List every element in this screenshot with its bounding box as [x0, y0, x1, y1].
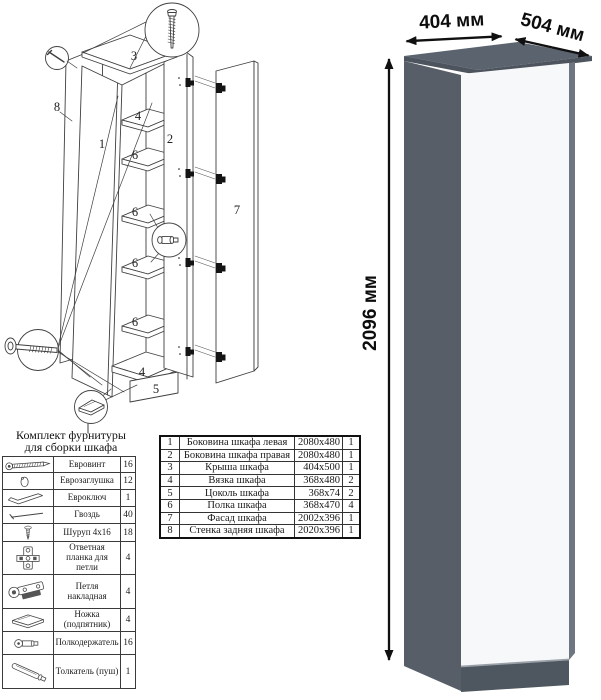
part-number: 1: [160, 436, 180, 449]
hardware-kit-title: Комплект фурнитуры для сборки шкафа: [0, 430, 142, 453]
right-side-panel-shape: [164, 52, 193, 377]
table-row: Толкатель (пуш) 1: [3, 655, 136, 689]
hardware-kit-table: Евровинт 16 Еврозаглушка 12 Евроключ 1: [2, 456, 136, 689]
part-qty: 2: [343, 474, 361, 487]
table-row: Ответная планка для петли 4: [3, 542, 136, 575]
cabinet-render: [404, 42, 592, 692]
part-label-plinth: 5: [153, 382, 159, 396]
table-row: Петля накладная 4: [3, 575, 136, 609]
cabinet-left-side: [404, 61, 461, 691]
height-dimension-label: 2096 мм: [360, 275, 381, 351]
cabinet-right-edge: [569, 62, 575, 660]
table-row: 4 Вязка шкафа 368x480 2: [160, 474, 360, 487]
part-size: 2002x396: [295, 512, 343, 525]
part-label-shelf-4: 6: [132, 315, 138, 329]
table-row: Шуруп 4x16 18: [3, 524, 136, 542]
hardware-kit-title-line2: для сборки шкафа: [0, 442, 142, 454]
table-row: Еврозаглушка 12: [3, 473, 136, 490]
part-name: Боковина шкафа левая: [180, 436, 295, 449]
hardware-qty: 16: [121, 632, 136, 655]
part-name: Цоколь шкафа: [180, 487, 295, 500]
depth-dimension-label: 504 мм: [518, 9, 586, 46]
hardware-name: Толкатель (пуш): [54, 655, 121, 689]
hardware-qty: 1: [121, 655, 136, 689]
table-row: 1 Боковина шкафа левая 2080x480 1: [160, 436, 360, 449]
hinge-icon: [4, 577, 52, 607]
hardware-qty: 4: [121, 575, 136, 609]
part-name: Вязка шкафа: [180, 474, 295, 487]
table-row: Полкодержатель 16: [3, 632, 136, 655]
part-size: 404x500: [295, 462, 343, 475]
hardware-name: Гвоздь: [54, 507, 121, 524]
assembly-instruction-page: { "diagram": { "labels": { "left_side": …: [0, 0, 601, 700]
table-row: Ножка (подпятник) 4: [3, 609, 136, 632]
part-number: 3: [160, 462, 180, 475]
table-row: Евровинт 16: [3, 457, 136, 473]
part-label-shelf-2: 6: [132, 205, 138, 219]
part-number: 8: [160, 525, 180, 538]
part-name: Боковина шкафа правая: [180, 449, 295, 462]
part-label-tie-top: 4: [135, 109, 142, 123]
parts-list-table: 1 Боковина шкафа левая 2080x480 1 2 Боко…: [159, 435, 361, 539]
table-row: Евроключ 1: [3, 490, 136, 507]
cap-icon: [4, 474, 52, 489]
part-label-right-side: 2: [167, 132, 173, 146]
confirmat-screw-icon: [4, 458, 52, 472]
part-size: 2080x480: [295, 449, 343, 462]
exploded-diagram: 1 2 3 4 6 6 6 6 4 5 7 8: [5, 3, 258, 433]
table-row: 5 Цоколь шкафа 368x74 2: [160, 487, 360, 500]
part-name: Полка шкафа: [180, 499, 295, 512]
hardware-qty: 4: [121, 609, 136, 632]
table-row: 3 Крыша шкафа 404x500 1: [160, 462, 360, 475]
part-label-facade: 7: [234, 203, 240, 217]
part-label-tie-bottom: 4: [139, 365, 146, 379]
shelf-pin-icon: [4, 636, 52, 651]
hardware-qty: 16: [121, 457, 136, 473]
hardware-name: Евровинт: [54, 457, 121, 473]
part-qty: 1: [343, 449, 361, 462]
push-rod-icon: [4, 659, 52, 685]
table-row: Гвоздь 40: [3, 507, 136, 524]
part-name: Фасад шкафа: [180, 512, 295, 525]
part-number: 4: [160, 474, 180, 487]
hinge-plate-icon: [4, 543, 52, 573]
hardware-qty: 12: [121, 473, 136, 490]
hardware-name: Еврозаглушка: [54, 473, 121, 490]
table-row: 8 Стенка задняя шкафа 2020x396 1: [160, 525, 360, 538]
part-size: 2080x480: [295, 436, 343, 449]
part-qty: 4: [343, 499, 361, 512]
part-name: Стенка задняя шкафа: [180, 525, 295, 538]
width-dimension-label: 404 мм: [419, 9, 485, 33]
part-number: 2: [160, 449, 180, 462]
nail-icon: [4, 509, 52, 521]
hardware-name: Ножка (подпятник): [54, 609, 121, 632]
hardware-name: Полкодержатель: [54, 632, 121, 655]
part-label-left-side: 1: [99, 137, 105, 151]
part-qty: 1: [343, 462, 361, 475]
facade-shape: [216, 61, 258, 383]
table-row: 6 Полка шкафа 368x470 4: [160, 499, 360, 512]
hardware-qty: 1: [121, 490, 136, 507]
hardware-qty: 40: [121, 507, 136, 524]
hardware-qty: 4: [121, 542, 136, 575]
part-number: 7: [160, 512, 180, 525]
part-size: 368x480: [295, 474, 343, 487]
screw-icon: [4, 524, 52, 541]
foot-icon: [4, 610, 52, 630]
hardware-name: Петля накладная: [54, 575, 121, 609]
confirmat-detail-circle: [145, 3, 199, 57]
hex-key-icon: [4, 490, 52, 506]
part-label-top-panel: 3: [131, 49, 137, 63]
part-label-shelf-3: 6: [132, 256, 138, 270]
part-number: 5: [160, 487, 180, 500]
part-size: 368x74: [295, 487, 343, 500]
part-number: 6: [160, 499, 180, 512]
cabinet-door: [461, 63, 569, 667]
part-name: Крыша шкафа: [180, 462, 295, 475]
part-label-shelf-1: 6: [132, 148, 138, 162]
table-row: 2 Боковина шкафа правая 2080x480 1: [160, 449, 360, 462]
part-qty: 1: [343, 525, 361, 538]
part-qty: 1: [343, 436, 361, 449]
part-label-back-panel: 8: [54, 100, 60, 114]
part-size: 2020x396: [295, 525, 343, 538]
table-row: 7 Фасад шкафа 2002x396 1: [160, 512, 360, 525]
part-size: 368x470: [295, 499, 343, 512]
hinge-connectors: [195, 76, 215, 357]
part-qty: 2: [343, 487, 361, 500]
part-qty: 1: [343, 512, 361, 525]
hardware-name: Ответная планка для петли: [54, 542, 121, 575]
hardware-name: Шуруп 4x16: [54, 524, 121, 542]
hardware-name: Евроключ: [54, 490, 121, 507]
hardware-qty: 18: [121, 524, 136, 542]
